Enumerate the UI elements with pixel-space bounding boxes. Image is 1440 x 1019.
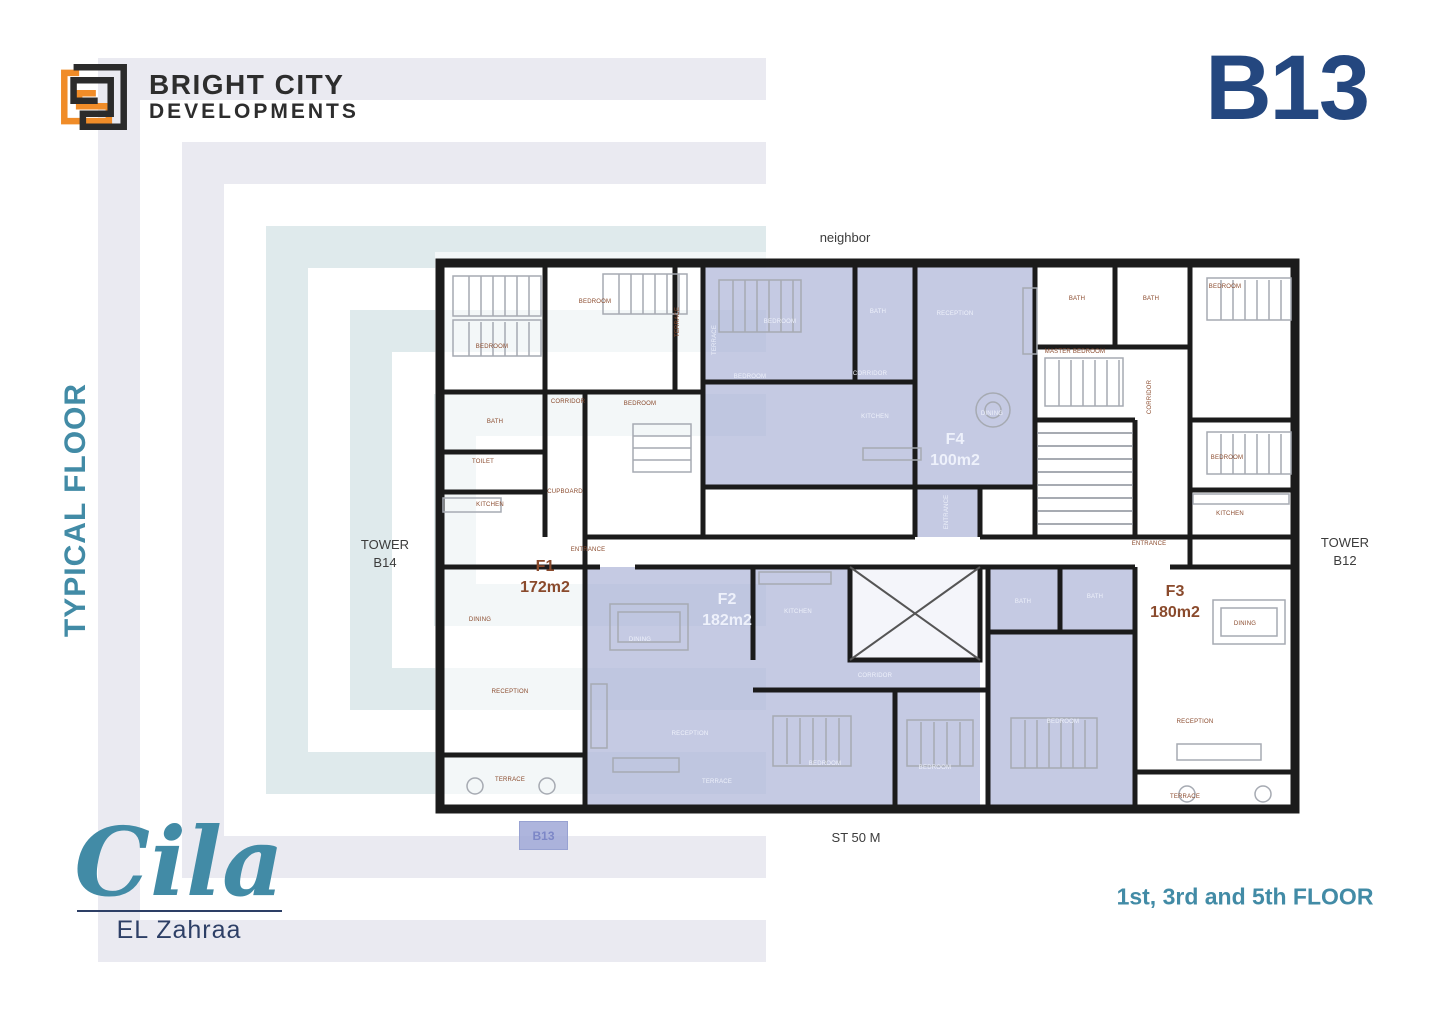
floors-note: 1st, 3rd and 5th FLOOR (1117, 884, 1374, 911)
unit-id: F3 (1150, 582, 1200, 603)
brand-subtitle: DEVELOPMENTS (149, 100, 359, 124)
unit-area: 180m2 (1150, 603, 1200, 624)
room-label: RECEPTION (492, 689, 529, 695)
b13-position-marker: B13 (519, 821, 568, 850)
room-label: TOILET (472, 459, 494, 465)
room-label: CUPBOARD (547, 489, 583, 495)
building-code: B13 (1205, 42, 1368, 134)
unit-label-f3: F3 180m2 (1150, 582, 1200, 624)
room-label: KITCHEN (861, 414, 889, 420)
room-label: BEDROOM (919, 765, 951, 771)
floor-plan: BEDROOMBEDROOMTERRACEBEDROOMCORRIDORBATH… (435, 252, 1300, 830)
room-label: DINING (629, 637, 651, 643)
project-name: Cila (48, 818, 310, 908)
unit-area: 100m2 (930, 451, 980, 472)
room-label: BEDROOM (476, 344, 508, 350)
tower-name: TOWER (361, 536, 409, 554)
brand-logo-icon (55, 58, 133, 136)
brand-name: BRIGHT CITY (149, 70, 359, 99)
room-label: TERRACE (702, 779, 732, 785)
room-label: ENTRANCE (1132, 541, 1167, 547)
room-label: RECEPTION (1177, 719, 1214, 725)
room-label: BATH (487, 419, 503, 425)
tower-code: B12 (1333, 552, 1356, 570)
room-label: BEDROOM (624, 401, 656, 407)
cila-logo: Cila EL Zahraa (48, 818, 310, 945)
room-label: KITCHEN (784, 609, 812, 615)
room-label: TERRACE (1170, 794, 1200, 800)
room-label: TERRACE (675, 307, 681, 337)
unit-label-f1: F1 172m2 (520, 557, 570, 599)
room-label: BATH (1087, 594, 1103, 600)
room-label: BEDROOM (1047, 719, 1079, 725)
room-label: ENTRANCE (944, 495, 950, 530)
room-label: TERRACE (712, 325, 718, 355)
room-label: BEDROOM (734, 374, 766, 380)
brand-logo: BRIGHT CITY DEVELOPMENTS (55, 58, 359, 136)
room-label: CORRIDOR (1147, 380, 1153, 414)
room-label: KITCHEN (1216, 511, 1244, 517)
room-label: CORRIDOR (858, 673, 892, 679)
tower-name: TOWER (1321, 534, 1369, 552)
room-label: MASTER BEDROOM (1045, 349, 1105, 355)
room-label: BATH (1069, 296, 1085, 302)
unit-id: F2 (702, 590, 752, 611)
unit-label-f4: F4 100m2 (930, 430, 980, 472)
room-labels-layer: BEDROOMBEDROOMTERRACEBEDROOMCORRIDORBATH… (435, 252, 1300, 830)
neighbor-label: neighbor (820, 230, 871, 245)
room-label: DINING (1234, 621, 1256, 627)
room-label: CORRIDOR (853, 371, 887, 377)
room-label: BEDROOM (1211, 455, 1243, 461)
room-label: TERRACE (495, 777, 525, 783)
tower-code: B14 (373, 554, 396, 572)
room-label: BATH (1015, 599, 1031, 605)
unit-area: 182m2 (702, 611, 752, 632)
unit-area: 172m2 (520, 578, 570, 599)
room-label: BEDROOM (1209, 284, 1241, 290)
room-label: RECEPTION (672, 731, 709, 737)
room-label: DINING (981, 411, 1003, 417)
room-label: BATH (1143, 296, 1159, 302)
unit-id: F1 (520, 557, 570, 578)
unit-id: F4 (930, 430, 980, 451)
room-label: ENTRANCE (571, 547, 606, 553)
room-label: BEDROOM (764, 319, 796, 325)
typical-floor-label: TYPICAL FLOOR (59, 383, 93, 637)
tower-b12-label: TOWER B12 (1321, 534, 1369, 570)
room-label: RECEPTION (937, 311, 974, 317)
room-label: BEDROOM (809, 761, 841, 767)
tower-b14-label: TOWER B14 (361, 536, 409, 572)
brand-text: BRIGHT CITY DEVELOPMENTS (149, 70, 359, 123)
room-label: KITCHEN (476, 502, 504, 508)
room-label: BATH (870, 309, 886, 315)
room-label: CORRIDOR (551, 399, 585, 405)
room-label: DINING (469, 617, 491, 623)
unit-label-f2: F2 182m2 (702, 590, 752, 632)
page: BRIGHT CITY DEVELOPMENTS B13 TYPICAL FLO… (0, 0, 1440, 1019)
room-label: BEDROOM (579, 299, 611, 305)
street-label: ST 50 M (832, 830, 881, 845)
